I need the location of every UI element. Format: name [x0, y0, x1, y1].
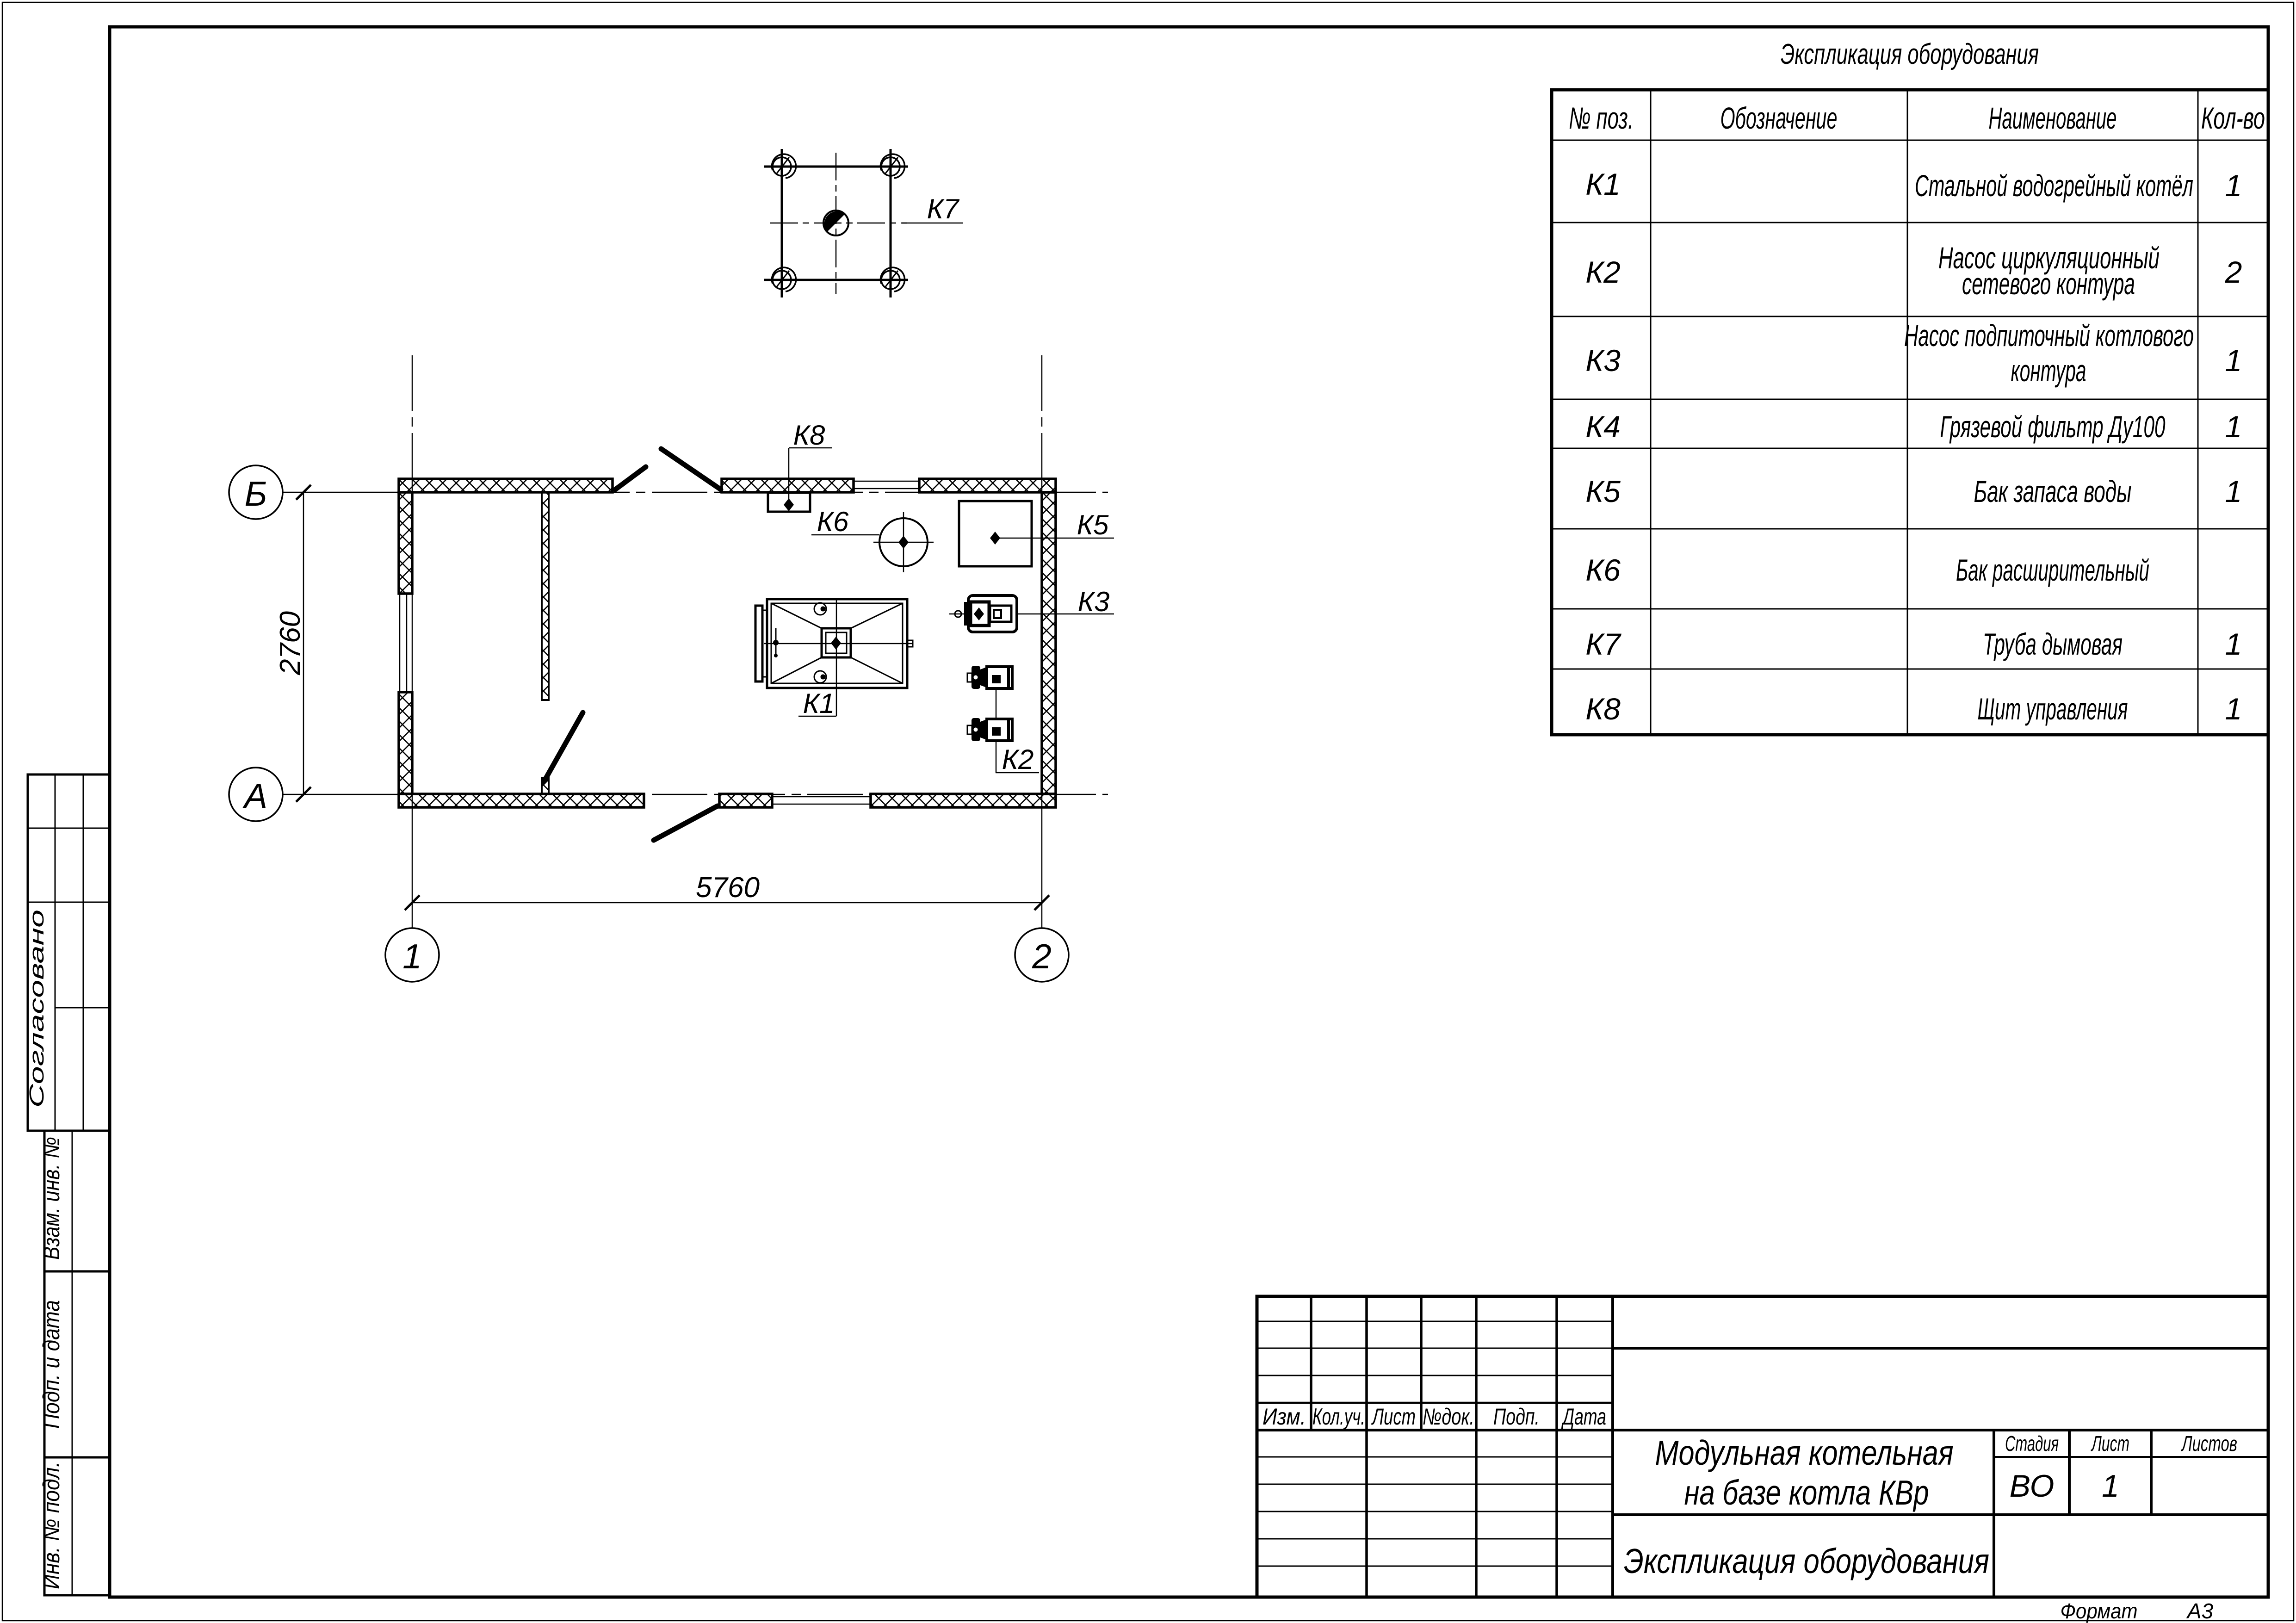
svg-text:К5: К5: [1077, 509, 1109, 540]
svg-text:А3: А3: [2186, 1599, 2214, 1623]
svg-text:К5: К5: [1585, 474, 1621, 508]
svg-text:К3: К3: [1078, 586, 1110, 617]
svg-text:Подп. и дата: Подп. и дата: [38, 1300, 64, 1429]
svg-text:ВО: ВО: [2010, 1468, 2055, 1504]
svg-text:1: 1: [2102, 1468, 2119, 1504]
svg-text:Взам. инв. №: Взам. инв. №: [38, 1137, 64, 1260]
svg-text:2: 2: [1032, 937, 1052, 976]
svg-text:Стадия: Стадия: [2005, 1431, 2059, 1456]
svg-text:Наименование: Наименование: [1989, 101, 2117, 135]
svg-text:Кол-во: Кол-во: [2201, 101, 2265, 135]
svg-text:Б: Б: [245, 474, 267, 513]
svg-text:сетевого контура: сетевого контура: [1962, 266, 2135, 301]
svg-text:Листов: Листов: [2181, 1431, 2237, 1456]
svg-text:контура: контура: [2011, 353, 2086, 388]
svg-text:Инв. № подл.: Инв. № подл.: [38, 1462, 64, 1589]
svg-text:1: 1: [2225, 343, 2242, 378]
svg-text:Грязевой фильтр Ду100: Грязевой фильтр Ду100: [1940, 409, 2166, 444]
svg-text:К6: К6: [817, 506, 849, 537]
svg-text:Экспликация оборудования: Экспликация оборудования: [1624, 1542, 1989, 1580]
svg-text:Подп.: Подп.: [1493, 1404, 1540, 1430]
svg-text:К6: К6: [1585, 553, 1621, 587]
svg-text:1: 1: [2225, 474, 2242, 508]
svg-text:К7: К7: [1585, 627, 1621, 661]
svg-text:К2: К2: [1585, 255, 1621, 289]
svg-text:на базе котла КВр: на базе котла КВр: [1684, 1473, 1929, 1512]
svg-text:К1: К1: [1585, 167, 1621, 201]
svg-text:К7: К7: [927, 193, 960, 224]
svg-text:К4: К4: [1585, 409, 1621, 444]
svg-text:Экспликация оборудования: Экспликация оборудования: [1781, 38, 2039, 70]
svg-text:Насос подпиточный котлового: Насос подпиточный котлового: [1904, 318, 2194, 353]
svg-text:Бак расширительный: Бак расширительный: [1956, 553, 2149, 587]
svg-text:К1: К1: [803, 688, 835, 719]
svg-text:2760: 2760: [274, 611, 306, 675]
svg-text:№ поз.: № поз.: [1569, 101, 1634, 135]
svg-text:Бак запаса воды: Бак запаса воды: [1974, 474, 2132, 508]
svg-text:Обозначение: Обозначение: [1720, 101, 1838, 135]
svg-text:1: 1: [2225, 692, 2242, 726]
svg-text:5760: 5760: [696, 872, 760, 904]
svg-text:Формат: Формат: [2061, 1599, 2138, 1623]
svg-text:Согласовано: Согласовано: [25, 910, 48, 1108]
svg-text:1: 1: [2225, 168, 2242, 203]
svg-text:1: 1: [2225, 409, 2242, 444]
svg-text:А: А: [242, 776, 267, 815]
svg-text:К8: К8: [1585, 692, 1621, 726]
svg-text:К3: К3: [1585, 343, 1621, 378]
svg-text:№док.: №док.: [1423, 1404, 1474, 1430]
svg-text:Труба дымовая: Труба дымовая: [1983, 627, 2123, 661]
svg-text:Модульная котельная: Модульная котельная: [1655, 1433, 1954, 1472]
svg-text:Щит управления: Щит управления: [1978, 692, 2128, 726]
svg-text:К2: К2: [1002, 744, 1034, 775]
svg-text:Дата: Дата: [1561, 1404, 1606, 1430]
svg-text:Изм.: Изм.: [1262, 1404, 1306, 1430]
svg-text:1: 1: [2225, 627, 2242, 661]
svg-text:Лист: Лист: [2091, 1431, 2129, 1456]
svg-text:Лист: Лист: [1371, 1404, 1416, 1430]
svg-text:1: 1: [402, 937, 422, 976]
svg-text:К8: К8: [793, 420, 825, 451]
svg-text:Стальной водогрейный котёл: Стальной водогрейный котёл: [1915, 168, 2193, 203]
svg-text:2: 2: [2225, 255, 2242, 289]
svg-text:Кол.уч.: Кол.уч.: [1312, 1404, 1365, 1430]
